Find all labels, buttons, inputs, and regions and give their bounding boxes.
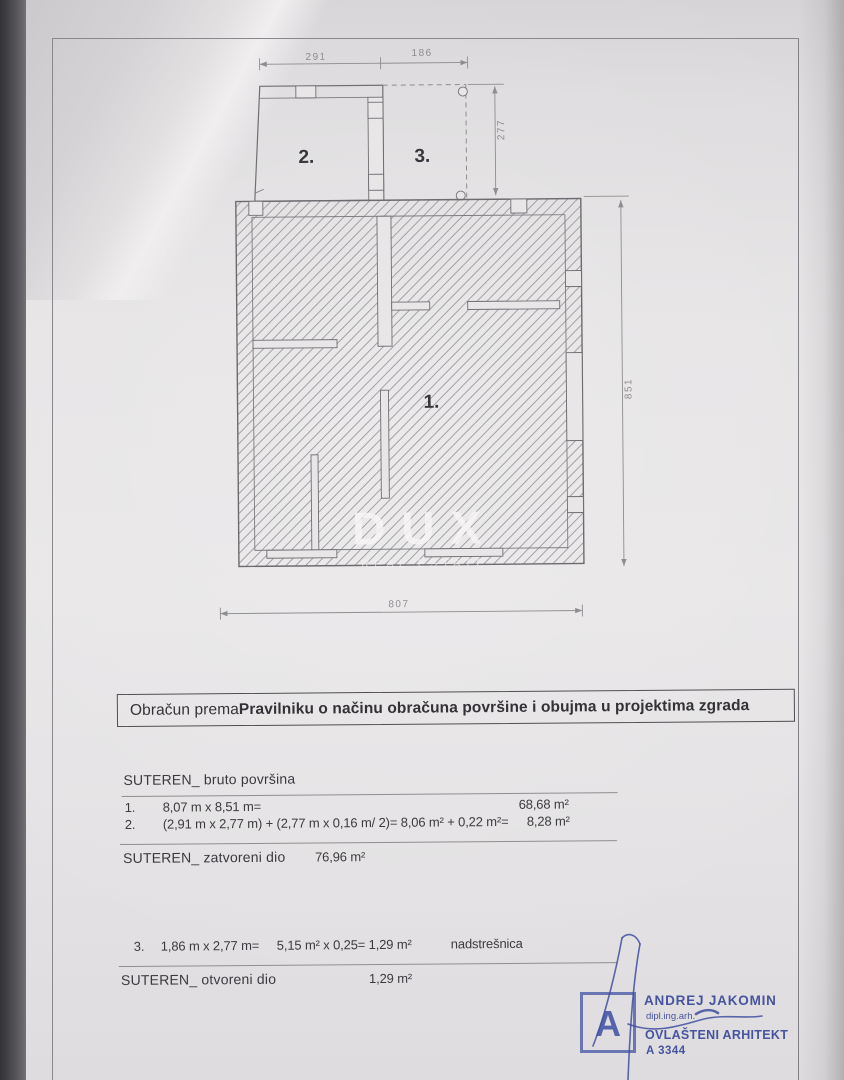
row-note: nadstrešnica — [451, 936, 523, 952]
row-formula: 8,07 m x 8,51 m= — [163, 799, 262, 815]
architect-name: ANDREJ JAKOMIN — [644, 993, 777, 1008]
architect-degree: dipl.ing.arh. — [646, 1011, 695, 1022]
table-row: 3. 1,86 m x 2,77 m= 5,15 m² x 0,25= 1,29… — [0, 0, 837, 1]
gross-section-title: SUTEREN_ bruto površina — [123, 771, 295, 788]
open-label: SUTEREN_ otvoreni dio — [121, 971, 276, 988]
row-number: 2. — [125, 817, 136, 832]
row-calculation: 5,15 m² x 0,25= 1,29 m² — [277, 937, 412, 953]
table-row: 2. (2,91 m x 2,77 m) + (2,77 m x 0,16 m/… — [0, 0, 837, 1]
open-value: 1,29 m² — [369, 971, 412, 986]
closed-label: SUTEREN_ zatvoreni dio — [123, 849, 285, 866]
architect-title: OVLAŠTENI ARHITEKT — [645, 1028, 788, 1042]
signature-flick-icon — [696, 1010, 718, 1014]
photographed-page: 2. 3. — [0, 0, 844, 1080]
calculation-block: Obračun prema Pravilniku o načinu obraču… — [0, 0, 844, 1080]
row-result: 68,68 m² — [519, 796, 569, 811]
row-formula: 1,86 m x 2,77 m= — [161, 938, 260, 954]
table-row: 1. 8,07 m x 8,51 m= 68,68 m² — [0, 0, 837, 1]
statement-regulation: Pravilniku o načinu obračuna površine i … — [239, 697, 750, 719]
row-result: 8,28 m² — [527, 813, 570, 828]
closed-value: 76,96 m² — [315, 849, 365, 864]
pen-stroke-icon — [622, 935, 640, 944]
pen-stroke-icon — [593, 938, 622, 1046]
closed-rule — [120, 840, 617, 845]
row-number: 1. — [125, 800, 136, 815]
statement-prefix: Obračun prema — [130, 701, 239, 720]
statement-box: Obračun prema Pravilniku o načinu obraču… — [117, 689, 795, 727]
row-formula: (2,91 m x 2,77 m) + (2,77 m x 0,16 m/ 2)… — [163, 814, 509, 832]
pen-stroke-icon — [628, 944, 640, 1080]
open-rule — [119, 962, 617, 967]
architect-license: A 3344 — [646, 1045, 686, 1057]
row-number: 3. — [134, 939, 145, 954]
